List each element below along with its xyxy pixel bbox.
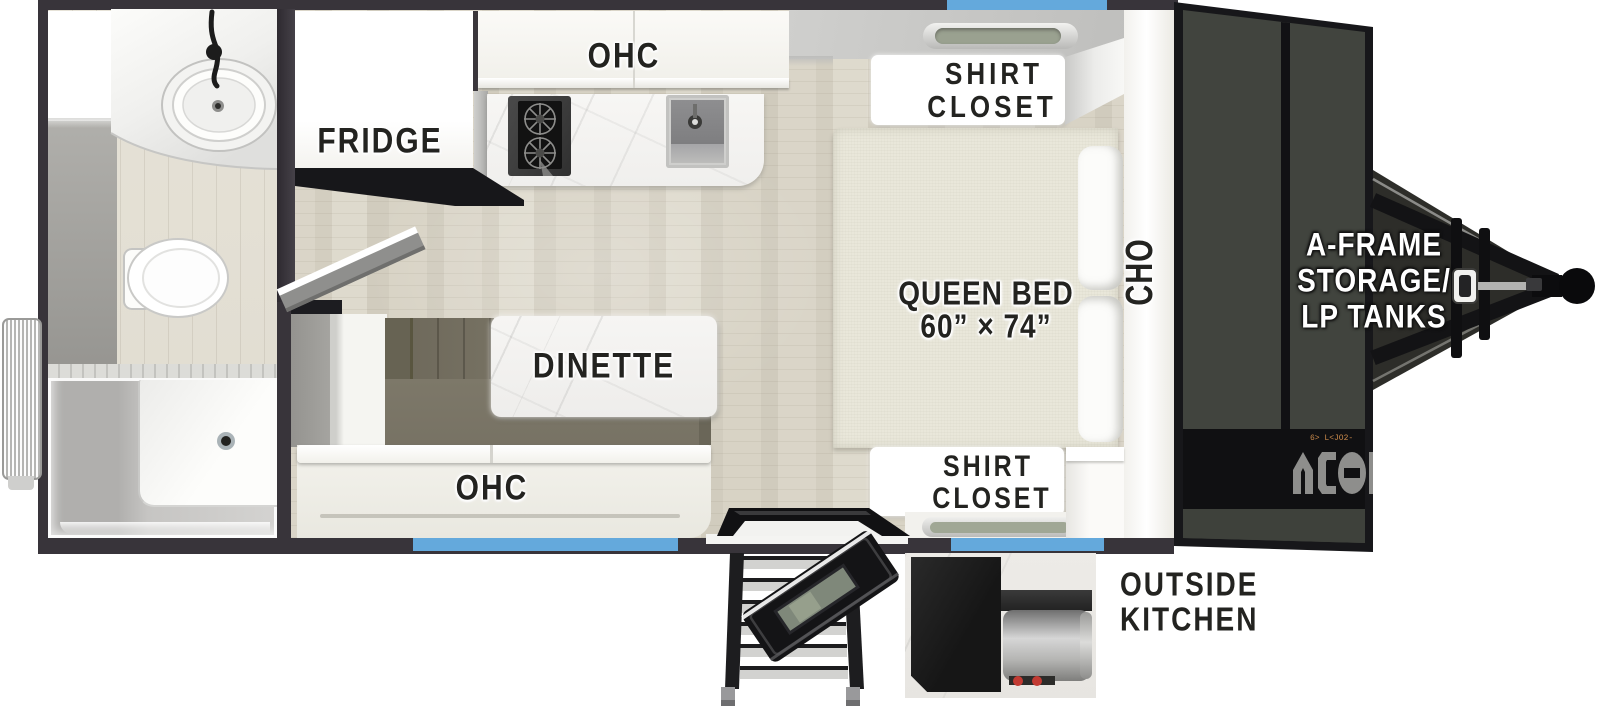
svg-text:6> L<JO2-: 6> L<JO2- bbox=[1310, 434, 1353, 443]
